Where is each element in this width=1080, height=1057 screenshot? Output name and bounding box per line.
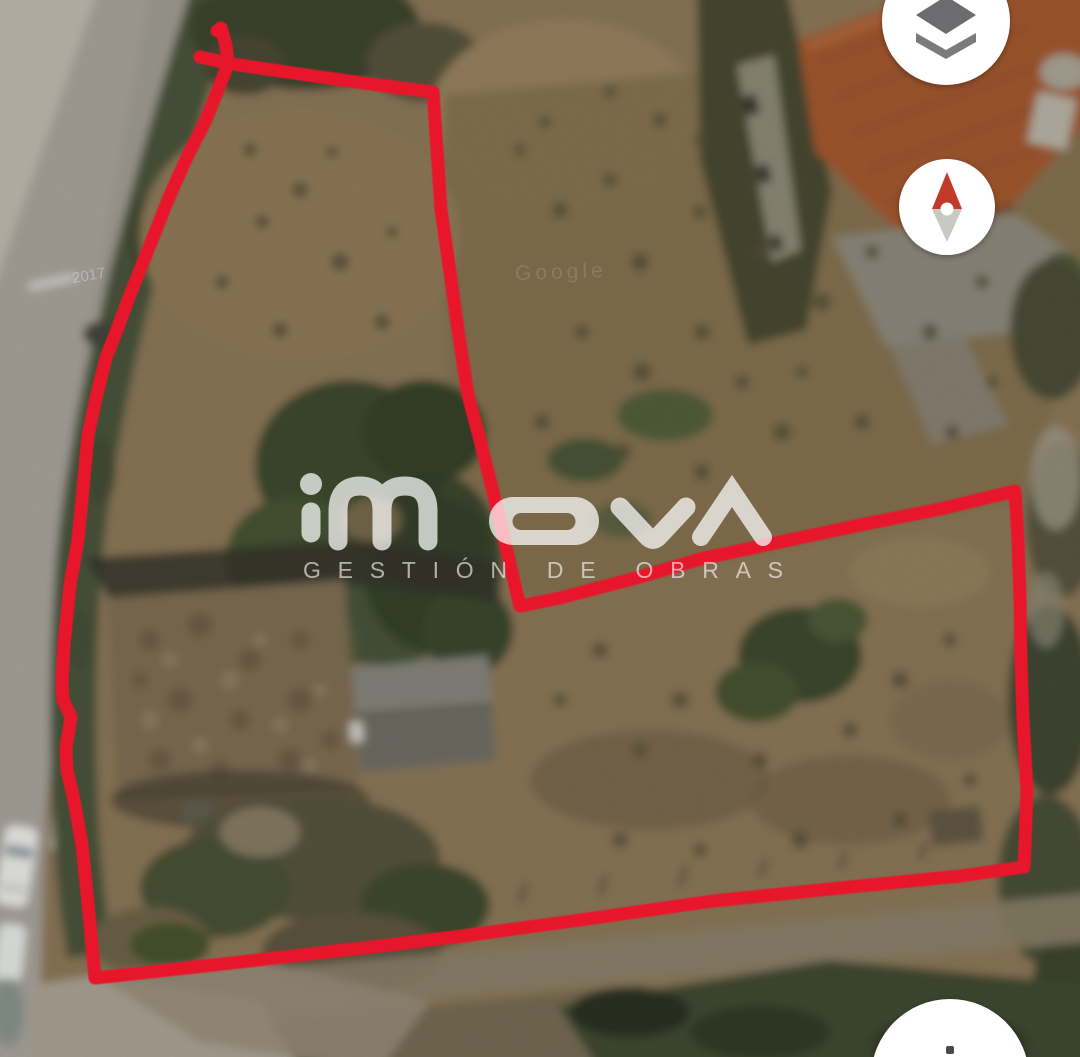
- map-canvas[interactable]: 2017 Google innova GESTIÓN DE OBRAS: [0, 0, 1080, 1057]
- logo-letter-i-dot: [300, 473, 322, 495]
- partial-hidden-icon: [946, 1046, 954, 1054]
- imagery-credit-ghost: Google: [515, 259, 607, 285]
- layers-icon: [915, 0, 977, 60]
- compass-button[interactable]: [899, 159, 995, 255]
- compass-needle-icon: [931, 172, 963, 242]
- satellite-imagery: 2017 Google innova GESTIÓN DE OBRAS: [0, 0, 1080, 1057]
- photo-grain: [0, 0, 1080, 1057]
